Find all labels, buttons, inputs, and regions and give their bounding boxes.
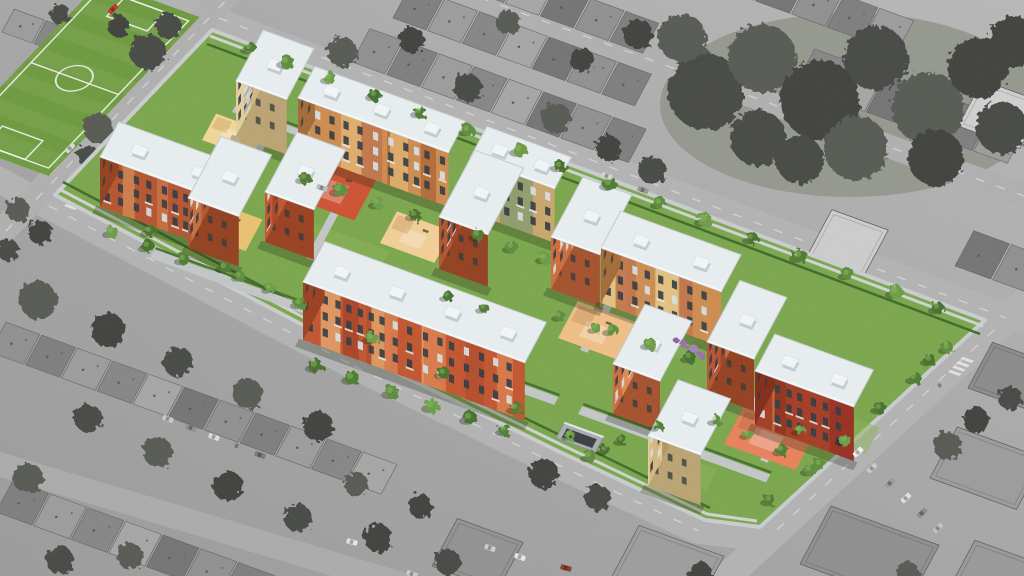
photo-grain — [0, 0, 1024, 576]
scene-canvas — [0, 0, 1024, 576]
aerial-photomontage — [0, 0, 1024, 576]
